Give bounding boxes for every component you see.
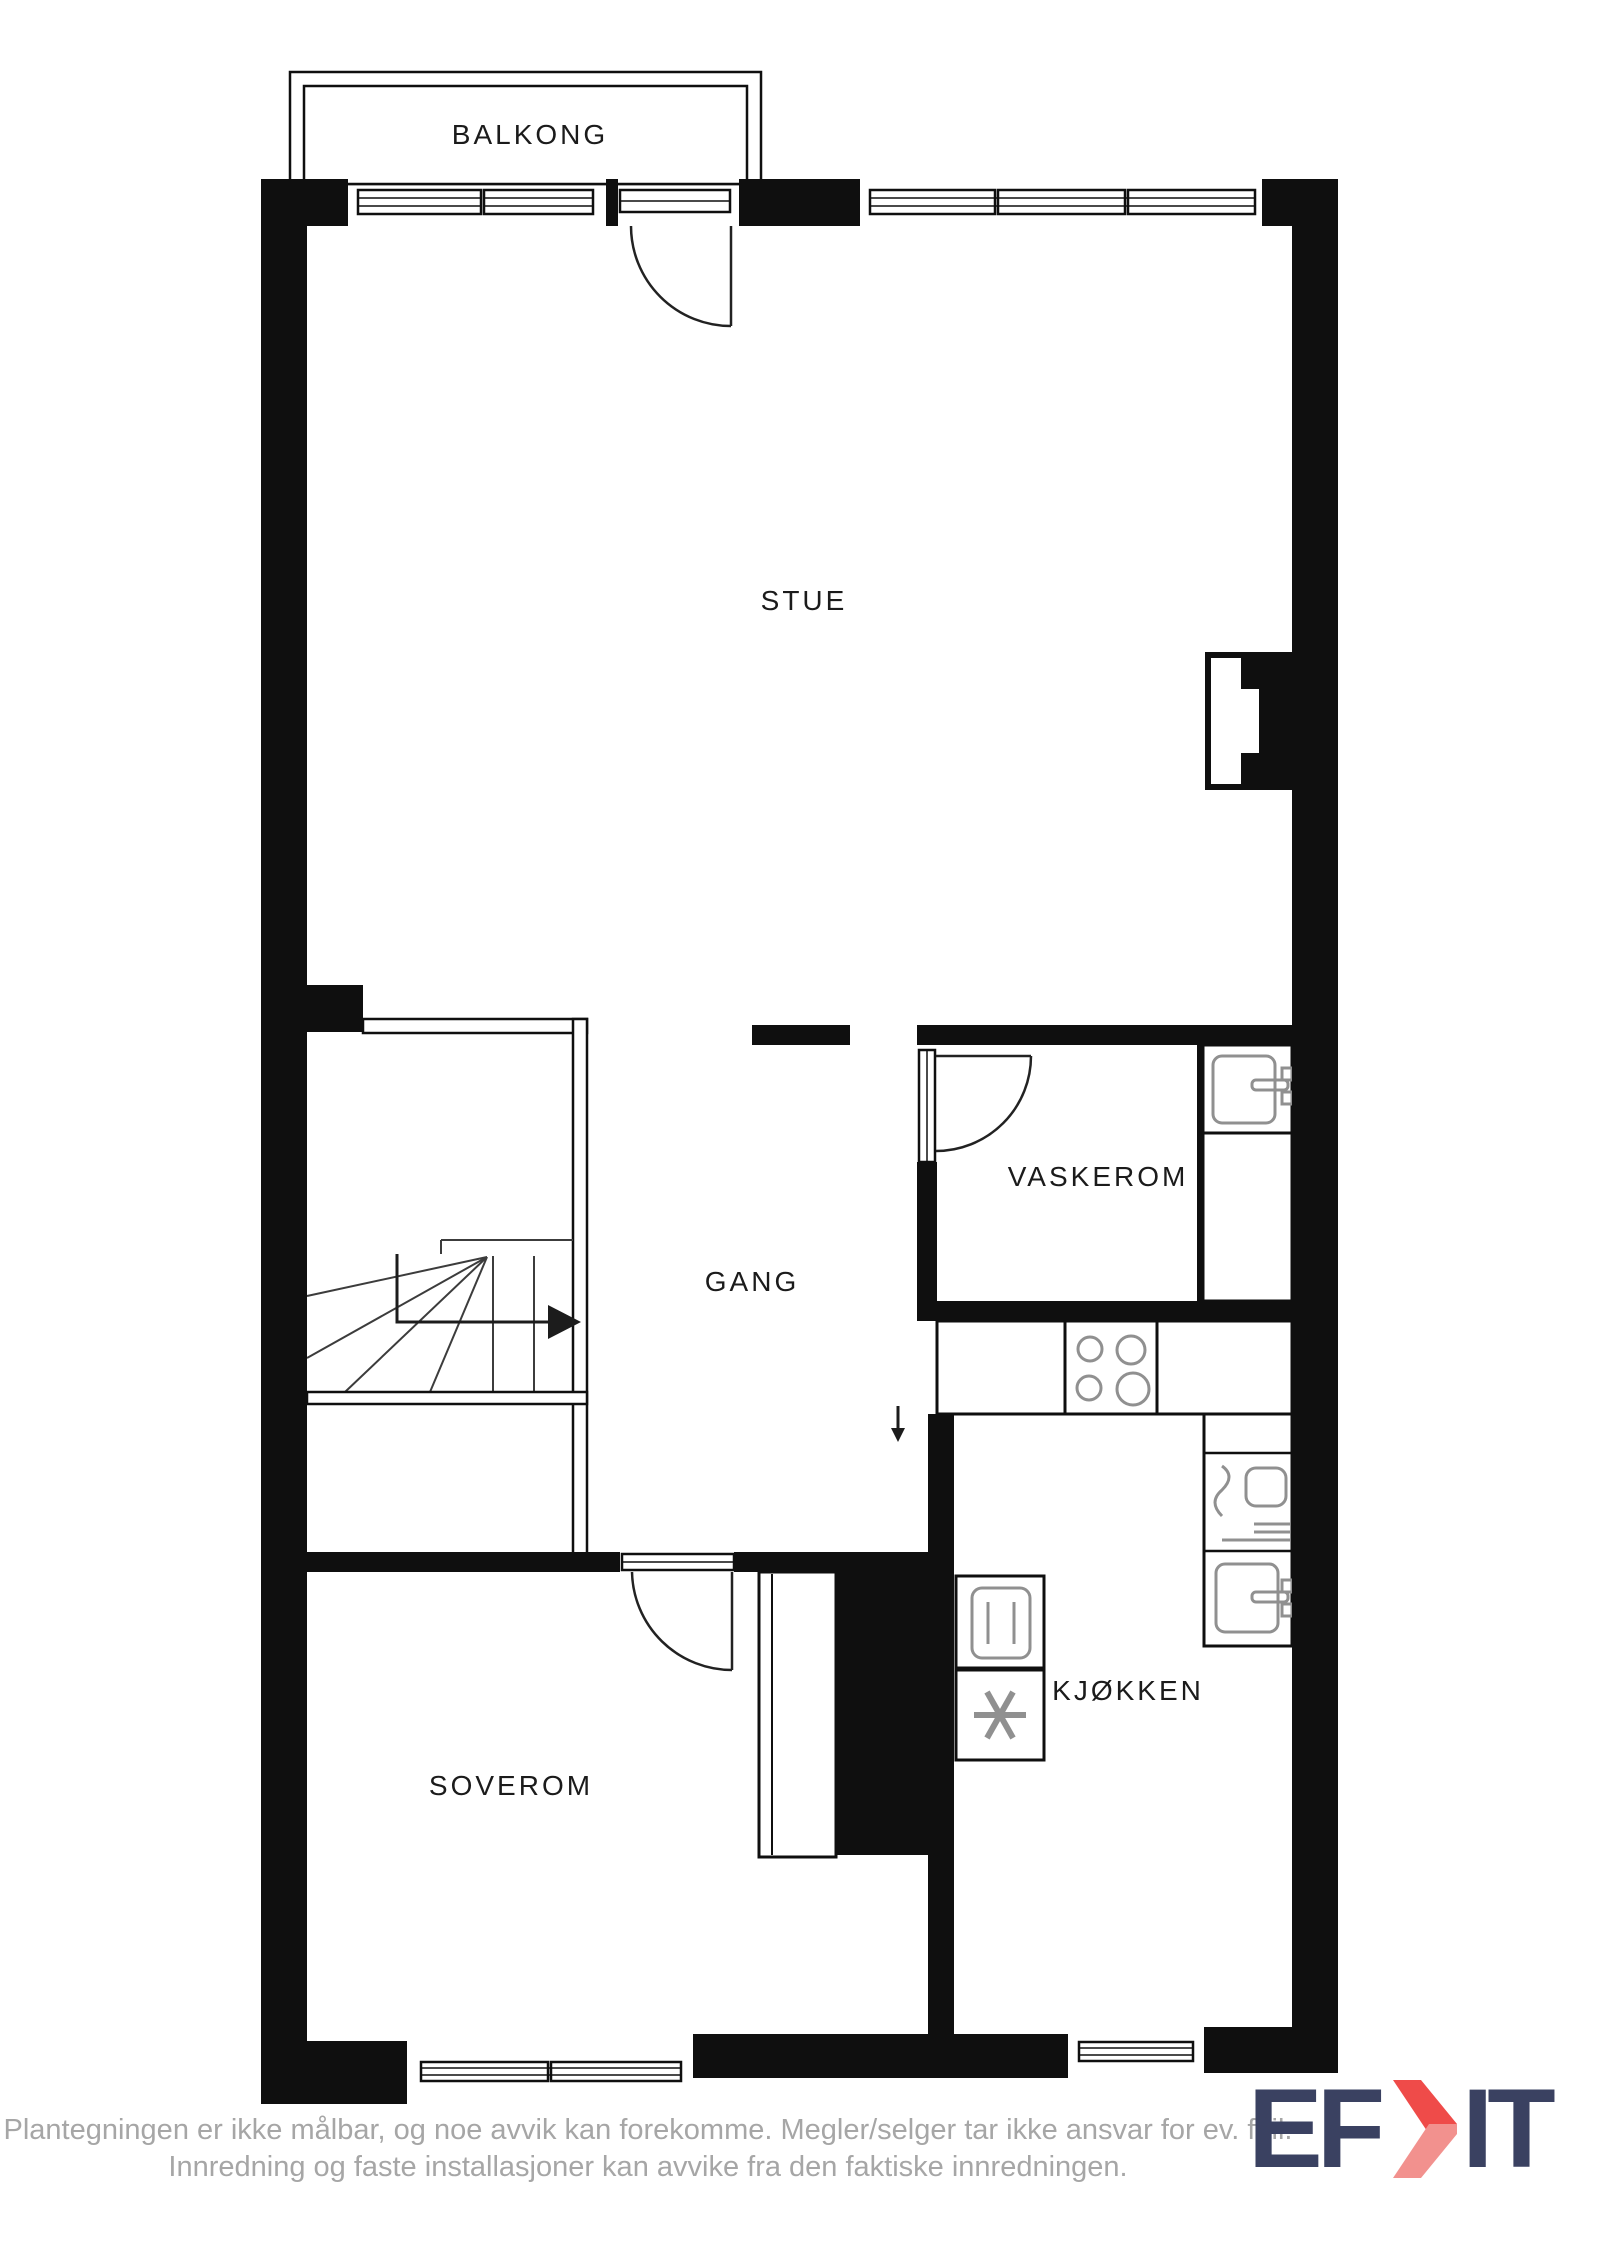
freezer-icon [956, 1670, 1044, 1760]
stair-direction-arrow-icon [397, 1254, 581, 1339]
wall-left [261, 179, 307, 2041]
wall-balcony-door-jamb [606, 179, 618, 226]
staircase [307, 1019, 587, 1554]
wall-laundry-left [917, 1162, 937, 1321]
stair-landing [307, 1392, 587, 1404]
logo-text-left: EF [1248, 2074, 1379, 2184]
chevron-right-icon [1387, 2080, 1459, 2178]
wardrobe [759, 1572, 836, 1857]
wall-bottom-left [261, 2041, 407, 2104]
room-label-balkong: BALKONG [452, 119, 608, 150]
room-label-vaskerom: VASKEROM [1008, 1161, 1189, 1192]
laundry-door [936, 1056, 1031, 1151]
laundry-fixtures [1203, 1045, 1292, 1301]
wall-laundry-nook-divider [1197, 1045, 1203, 1301]
room-label-kjokken: KJØKKEN [1052, 1675, 1204, 1706]
wall-laundry-top [917, 1025, 1338, 1045]
wall-kitchen-top [917, 1301, 1338, 1321]
wall-top-middle [739, 179, 860, 226]
window-top-right [870, 190, 1255, 214]
bedroom-door [632, 1572, 732, 1670]
wall-stair-stub [307, 985, 363, 1032]
wall-stue-gang-stub [752, 1025, 850, 1045]
wall-bedroom-top-west [307, 1552, 620, 1572]
footer-disclaimer: Plantegningen er ikke målbar, og noe avv… [0, 2112, 1296, 2186]
room-labels: BALKONG STUE GANG VASKEROM KJØKKEN SOVER… [429, 119, 1204, 1801]
entry-arrow-icon [891, 1406, 905, 1442]
efkt-logo: EF IT [1248, 2074, 1550, 2184]
door-thresholds [620, 190, 935, 1570]
window-bottom-right [1079, 2042, 1193, 2061]
disclaimer-line-2: Innredning og faste installasjoner kan a… [0, 2149, 1296, 2186]
stairwell-wall-right [573, 1019, 587, 1554]
room-label-stue: STUE [761, 585, 848, 616]
wall-bedroom-top-east [734, 1552, 852, 1572]
doors [631, 226, 1031, 1670]
wall-right [1292, 179, 1338, 2073]
fridge-icon [956, 1576, 1044, 1668]
balcony-door [631, 226, 731, 326]
wall-bottom-middle [693, 2034, 1068, 2078]
laundry-cabinet [1203, 1133, 1292, 1301]
kitchen-counter-right [1157, 1321, 1292, 1414]
floorplan-page: BALKONG STUE GANG VASKEROM KJØKKEN SOVER… [0, 0, 1600, 2264]
window-top-left [358, 190, 593, 214]
kitchen-counter-left [937, 1321, 1065, 1414]
wall-kitchen-left [928, 1414, 954, 2034]
stairwell-wall-top [363, 1019, 587, 1033]
disclaimer-line-1: Plantegningen er ikke målbar, og noe avv… [0, 2112, 1296, 2149]
floorplan-drawing: BALKONG STUE GANG VASKEROM KJØKKEN SOVER… [0, 0, 1600, 2264]
logo-text-right: IT [1462, 2074, 1550, 2184]
room-label-soverom: SOVEROM [429, 1770, 593, 1801]
window-bottom-left [421, 2062, 681, 2081]
wall-closet-block [836, 1552, 928, 1855]
room-label-gang: GANG [705, 1266, 799, 1297]
fireplace [1205, 652, 1292, 790]
